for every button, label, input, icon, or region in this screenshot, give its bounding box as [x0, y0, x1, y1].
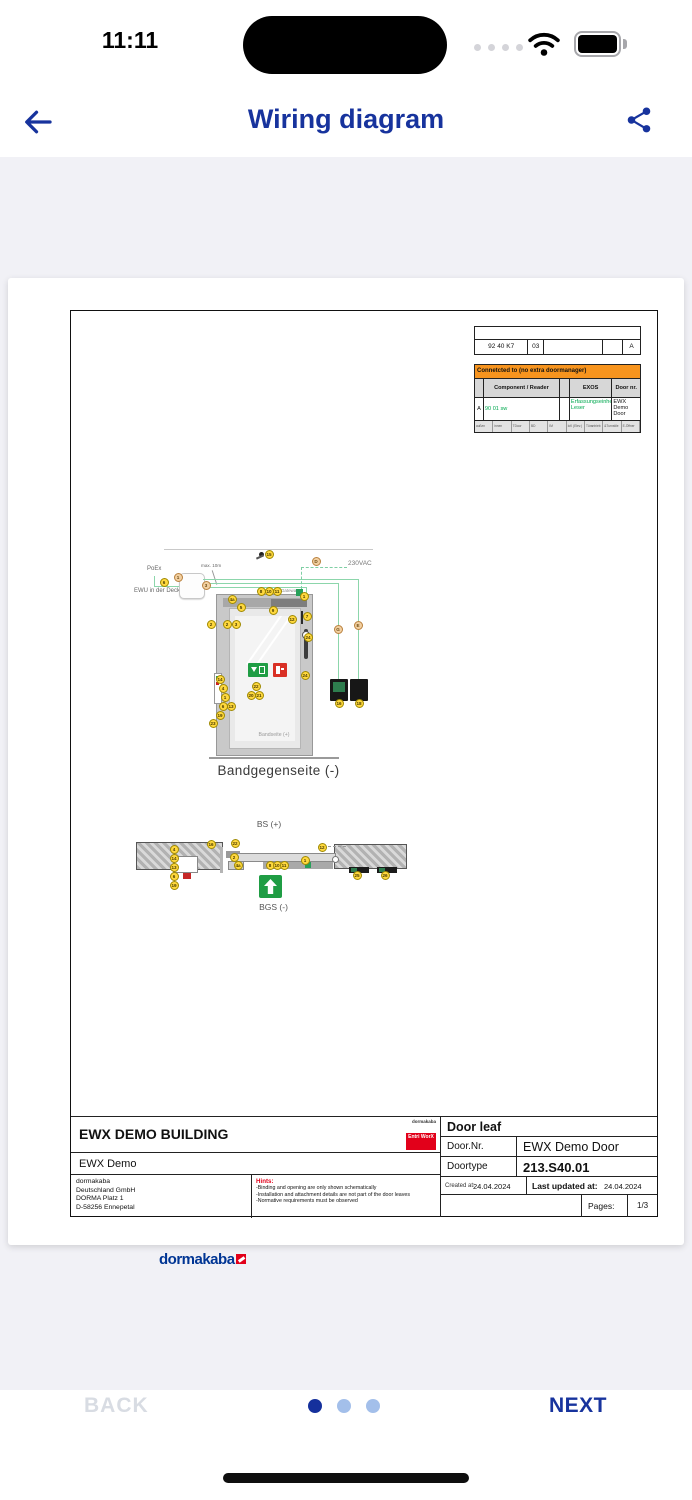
pages-value: 1/3	[637, 1201, 648, 1210]
diagram-marker: 25	[353, 871, 362, 880]
updated-value: 24.04.2024	[604, 1182, 642, 1191]
diagram-marker: 13	[227, 702, 236, 711]
diagram-marker: 16	[335, 699, 344, 708]
wifi-icon	[527, 30, 561, 63]
bandseite-label: Bandseite (+)	[249, 732, 299, 738]
diagram-marker: 4a	[228, 595, 237, 604]
ref-cell: A	[623, 340, 640, 354]
diagram-marker: 19	[170, 881, 179, 890]
wiring-diagram-page: 92 40 K7 03 A Connetcted to (no extra do…	[70, 310, 658, 1217]
footer-mini-cell: innen	[493, 421, 511, 432]
door-nr-label: Door.Nr.	[447, 1141, 484, 1152]
footer-mini-cell: außen	[475, 421, 493, 432]
diagram-marker: 24	[301, 671, 310, 680]
dynamic-island	[243, 16, 447, 74]
pages-label: Pages:	[588, 1201, 614, 1211]
door-nr-value: EWX Demo Door	[523, 1140, 619, 1154]
wire	[203, 579, 358, 580]
vertical-view-caption: Bandgegenseite (-)	[181, 763, 376, 778]
diagram-marker: 1	[174, 573, 183, 582]
vac-label: 230VAC	[348, 560, 372, 567]
diagram-marker: 6	[160, 578, 169, 587]
diagram-marker: 11	[273, 587, 282, 596]
page-dot	[366, 1399, 380, 1413]
ref-cell: 92 40 K7	[475, 340, 528, 354]
diagram-marker: 11	[280, 861, 289, 870]
diagram-marker: 13	[170, 863, 179, 872]
footer-mini-cell: E-Öffner	[622, 421, 640, 432]
entriworx-logo: dormakaba Entri WorX	[392, 1119, 436, 1150]
row-index: A	[475, 398, 484, 420]
doortype-value: 213.S40.01	[523, 1160, 590, 1175]
bs-label: BS (+)	[221, 819, 317, 829]
row-component: 90 01 sw	[484, 398, 560, 420]
diagram-marker: 19	[216, 711, 225, 720]
diagram-marker: 7	[303, 612, 312, 621]
poe-label: PoEx	[147, 566, 161, 572]
footer-mini-cell: &Turnstile	[603, 421, 621, 432]
wire	[154, 576, 155, 586]
wall-reader	[350, 679, 368, 701]
hints-cell: Hints: -Binding and opening are only sho…	[251, 1175, 441, 1218]
diagram-marker: E	[354, 621, 363, 630]
vac-wire	[301, 567, 302, 589]
diagram-marker: 22	[252, 682, 261, 691]
footer-mini-cell: TDoor	[512, 421, 530, 432]
door-sign-red	[273, 663, 287, 677]
dormakaba-logo: dormakaba	[159, 1251, 246, 1268]
cellular-signal-icon	[474, 44, 523, 51]
diagram-marker: 9	[269, 606, 278, 615]
door-leaf-header: Door leaf	[447, 1120, 501, 1134]
diagram-marker: 4	[219, 684, 228, 693]
diagram-marker: 22	[231, 839, 240, 848]
connected-to-title: Connetcted to (no extra doormanager)	[475, 365, 640, 379]
diagram-marker: 15	[265, 550, 274, 559]
diagram-marker: D	[312, 557, 321, 566]
door-glass	[235, 616, 295, 741]
diagram-marker: 12	[288, 615, 297, 624]
diagram-marker: 24	[304, 633, 313, 642]
diagram-marker: 14	[216, 675, 225, 684]
wire	[203, 583, 338, 584]
diagram-marker: 21	[255, 691, 264, 700]
share-button[interactable]	[624, 104, 664, 144]
direction-arrow-sign	[259, 875, 282, 898]
page-title: Wiring diagram	[0, 104, 692, 135]
diagram-marker: 16	[207, 840, 216, 849]
diagram-marker: 1	[301, 856, 310, 865]
diagram-marker: 1	[221, 693, 230, 702]
footer-mini-cell: Türantrieb	[585, 421, 603, 432]
diagram-marker: 3	[232, 620, 241, 629]
footer-mini-cell: IcK (Elev.)	[567, 421, 585, 432]
ref-cell	[603, 340, 623, 354]
diagram-marker: 4a	[234, 861, 243, 870]
row-exos: Erfassungseinheit Leser	[570, 398, 612, 420]
battery-icon	[574, 31, 621, 57]
vac-wire	[301, 567, 347, 568]
col-exos: EXOS	[570, 379, 612, 397]
home-indicator	[223, 1473, 469, 1483]
company-address: dormakaba Deutschland GmbH DORMA Platz 1…	[76, 1178, 135, 1212]
created-label: Created at:	[445, 1183, 475, 1189]
wall-right	[334, 844, 407, 869]
diagram-marker: 4	[170, 845, 179, 854]
diagram-marker: 18	[355, 699, 364, 708]
diagram-marker: G	[334, 625, 343, 634]
building-name: EWX DEMO BUILDING	[71, 1117, 440, 1152]
created-value: 24.04.2024	[473, 1182, 511, 1191]
diagram-marker: 23	[209, 719, 218, 728]
drawing-ref-table: 92 40 K7 03 A	[474, 326, 641, 355]
diagram-marker: 26	[381, 871, 390, 880]
next-nav-button[interactable]: NEXT	[549, 1394, 607, 1418]
emergency-exit-sign	[248, 663, 268, 677]
diagram-marker: 3	[202, 581, 211, 590]
pager-nav: BACK NEXT	[0, 1390, 692, 1500]
diagram-marker: 5	[237, 603, 246, 612]
bgs-label: BGS (-)	[226, 902, 321, 912]
app-header: Wiring diagram	[0, 90, 692, 157]
row-door-nr: EWX Demo Door	[612, 398, 640, 420]
updated-label: Last updated at:	[532, 1181, 598, 1191]
page-dot	[337, 1399, 351, 1413]
diagram-marker: 6	[170, 872, 179, 881]
floor-line	[209, 757, 339, 759]
diagram-marker: 2	[223, 620, 232, 629]
back-nav-button[interactable]: BACK	[84, 1394, 149, 1418]
title-block: EWX DEMO BUILDING dormakaba Entri WorX E…	[71, 1116, 657, 1216]
section-red-component	[183, 873, 191, 879]
ceiling-sensor-arm	[256, 554, 264, 559]
page-dot	[308, 1399, 322, 1413]
diagram-marker: 1	[300, 592, 309, 601]
ewu-label: EWU in der Decke	[134, 588, 183, 594]
project-name: EWX Demo	[71, 1152, 440, 1174]
hinge-pivot	[332, 856, 339, 863]
status-bar: 11:11	[0, 0, 692, 90]
status-time: 11:11	[92, 27, 168, 54]
diagram-marker: 12	[318, 843, 327, 852]
frame-profile	[220, 847, 223, 873]
max10-label: max. 10m	[201, 563, 221, 568]
col-component: Component / Reader	[484, 379, 560, 397]
footer-mini-cell: BD	[530, 421, 548, 432]
doortype-label: Doortype	[447, 1161, 488, 1172]
page-dots-indicator	[308, 1399, 380, 1413]
diagram-marker: 14	[170, 854, 179, 863]
col-door-nr: Door nr.	[612, 379, 640, 397]
wire	[203, 587, 306, 588]
connected-to-table: Connetcted to (no extra doormanager) Com…	[474, 364, 641, 433]
wall-reader-display	[330, 679, 348, 701]
footer-mini-cell: IM	[548, 421, 566, 432]
ref-cell	[544, 340, 603, 354]
document-card[interactable]: 92 40 K7 03 A Connetcted to (no extra do…	[8, 278, 684, 1245]
battery-nub	[623, 39, 627, 49]
connected-to-footer-row: außeninnenTDoorBDIMIcK (Elev.)Türantrieb…	[475, 421, 640, 432]
ref-cell: 03	[528, 340, 544, 354]
diagram-marker: 2	[207, 620, 216, 629]
